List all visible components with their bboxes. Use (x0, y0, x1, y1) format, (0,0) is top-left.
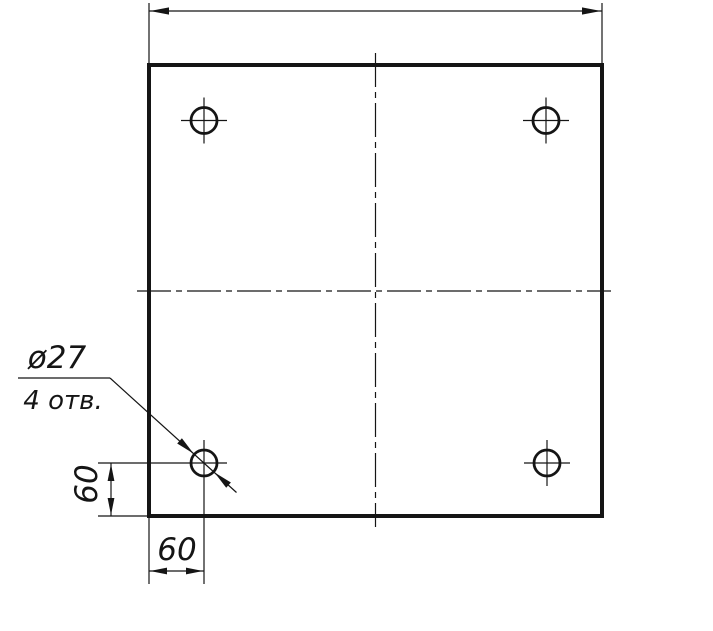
dimension-bottom-60: 60 (149, 516, 204, 584)
dim-bottom-value: 60 (157, 532, 196, 568)
drawing-canvas: 60 60 ø27 4 отв. (0, 0, 713, 631)
hole-top-right (523, 98, 569, 144)
plate-drawing-svg: 60 60 ø27 4 отв. (0, 0, 713, 631)
arrowhead-left (150, 7, 169, 14)
leader-count-text: 4 отв. (23, 386, 102, 416)
arrowhead-right (186, 568, 203, 575)
dim-left-value: 60 (69, 464, 105, 503)
arrowhead-bottom (108, 498, 115, 515)
dimension-left-60: 60 (69, 463, 149, 516)
hole-top-left (181, 98, 227, 144)
arrowhead-top (108, 464, 115, 481)
arrowhead-right (582, 7, 601, 14)
hole-bottom-right (524, 440, 570, 486)
leader-diameter-text: ø27 (27, 340, 87, 376)
arrowhead-left (150, 568, 167, 575)
